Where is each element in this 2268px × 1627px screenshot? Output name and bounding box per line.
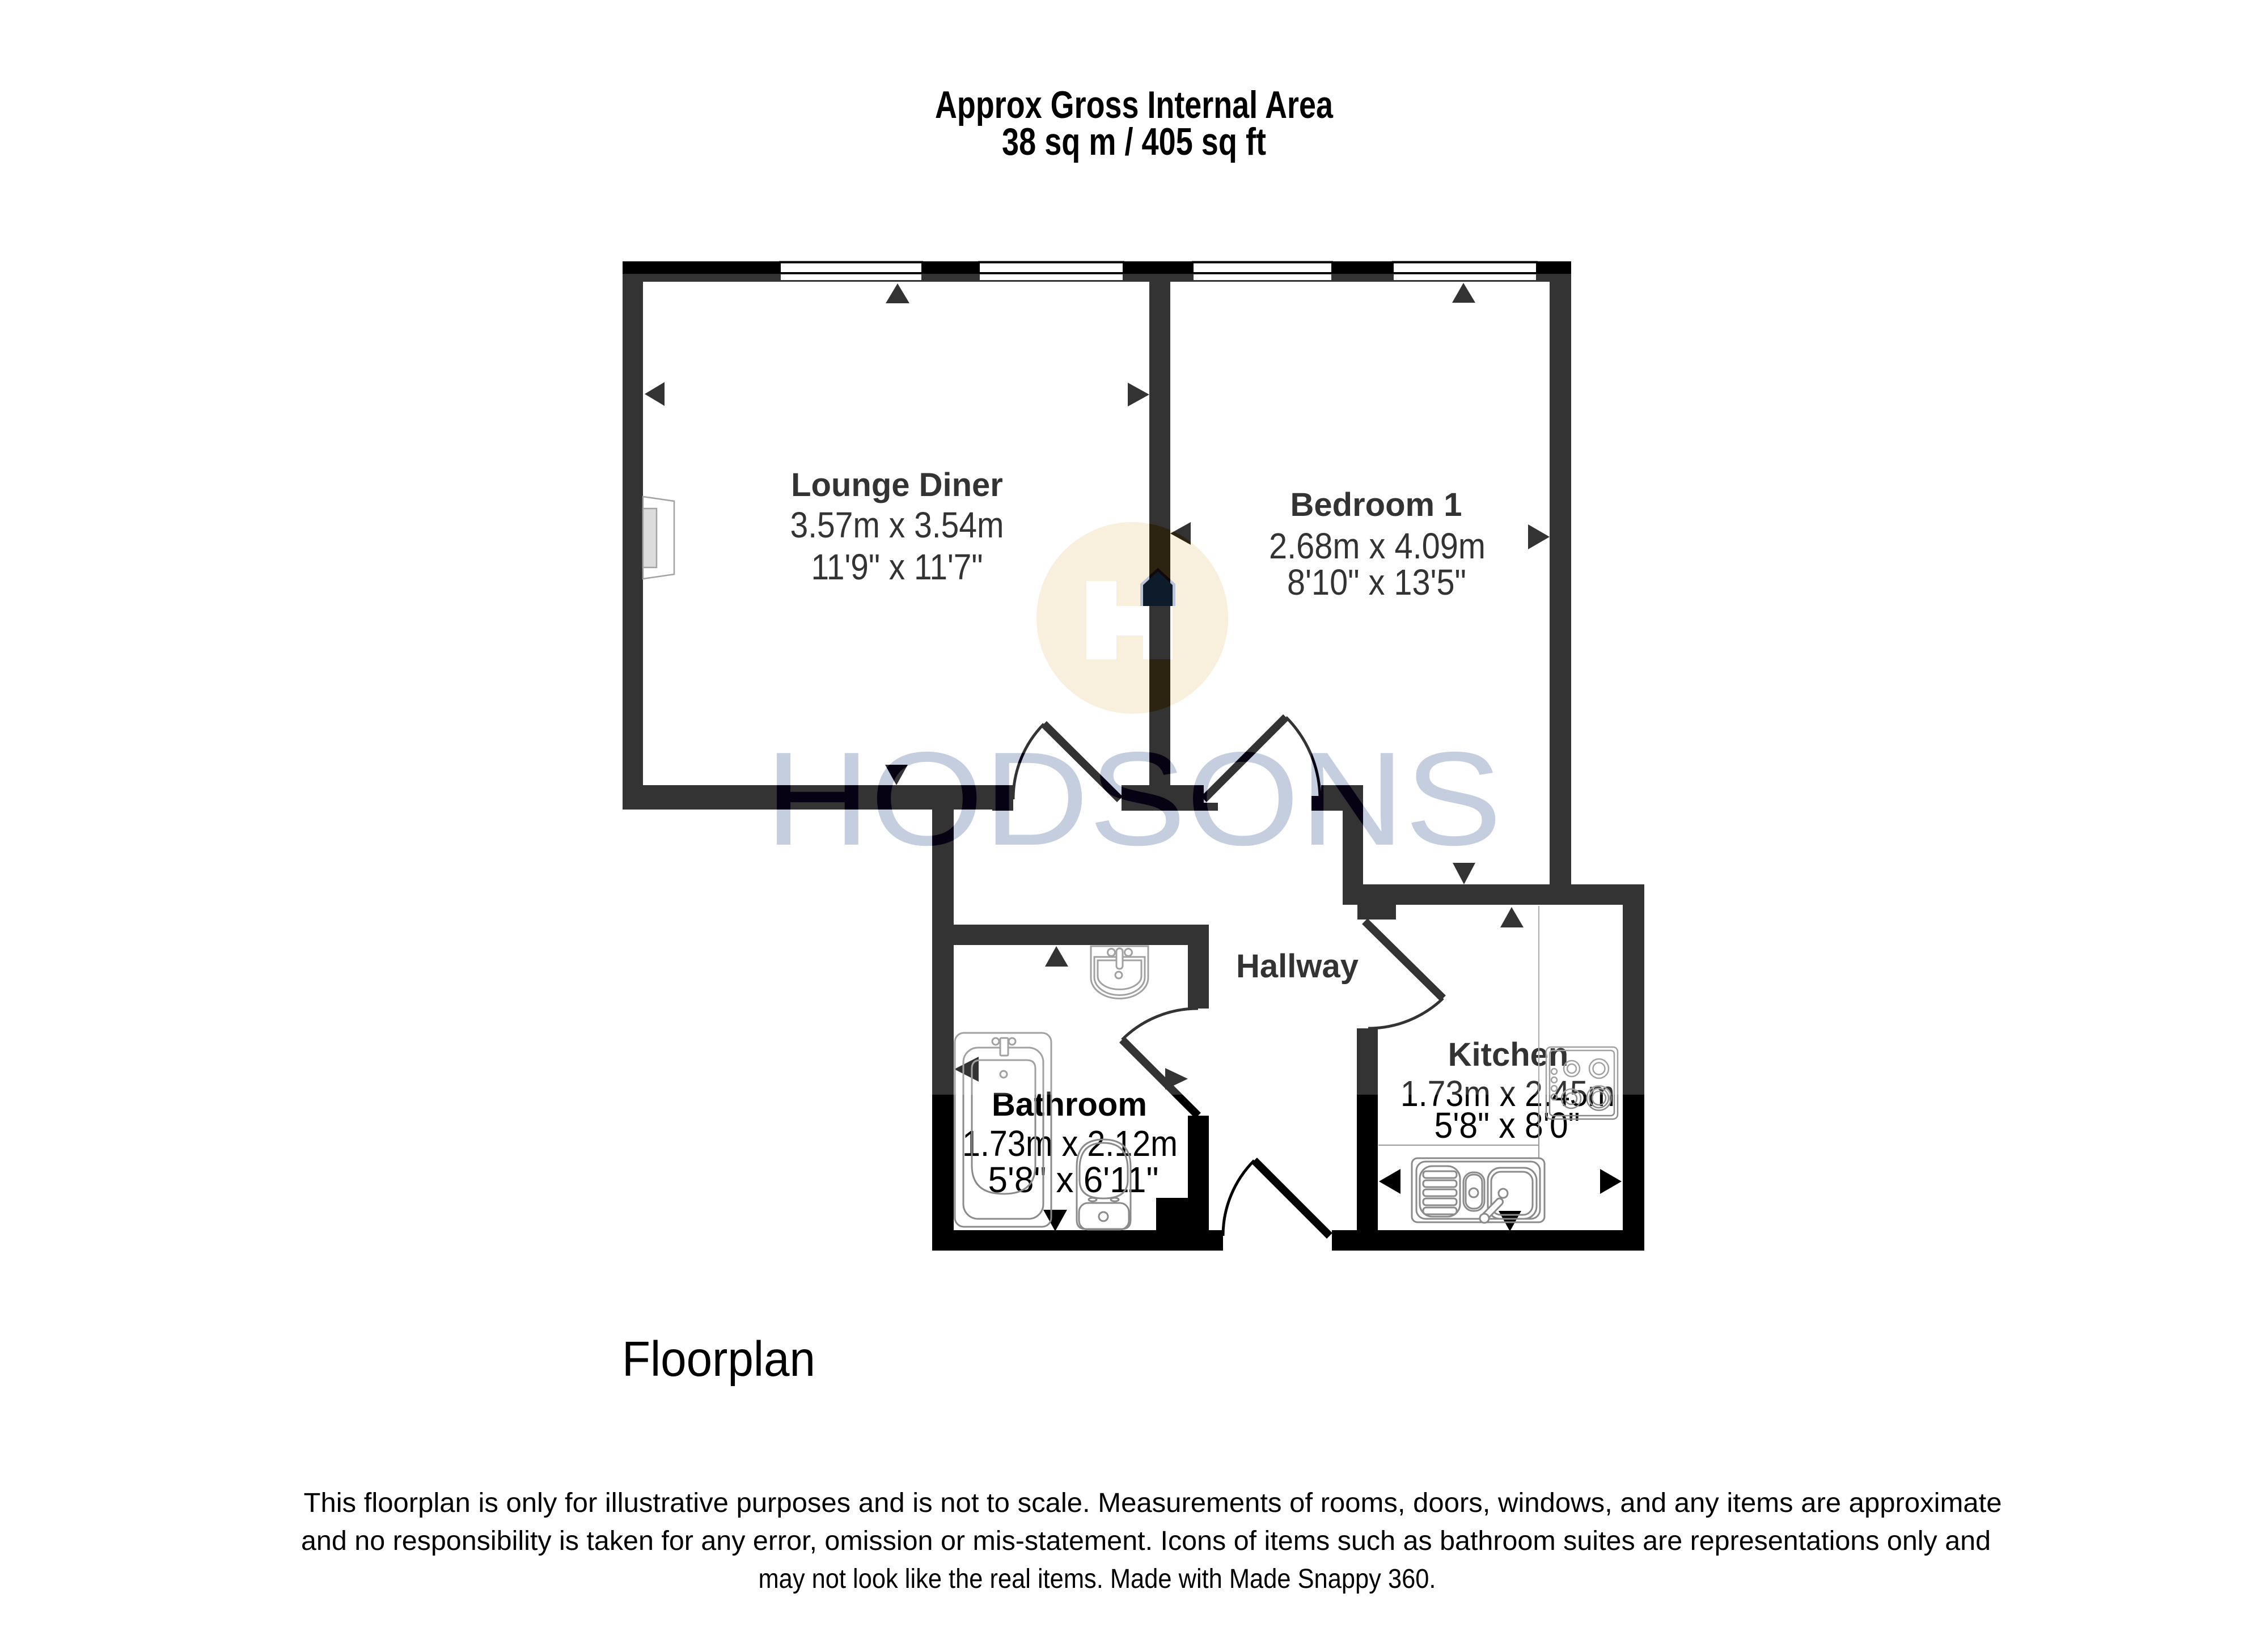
svg-text:HODSONS: HODSONS bbox=[765, 724, 1502, 873]
svg-text:This floorplan is only for ill: This floorplan is only for illustrative … bbox=[304, 1488, 2002, 1518]
svg-text:5'8" x 6'11": 5'8" x 6'11" bbox=[988, 1159, 1159, 1200]
svg-text:5'8" x 8'0": 5'8" x 8'0" bbox=[1435, 1105, 1580, 1146]
svg-text:38 sq m / 405 sq ft: 38 sq m / 405 sq ft bbox=[1002, 120, 1266, 163]
svg-text:may not look like the real ite: may not look like the real items. Made w… bbox=[759, 1564, 1436, 1594]
svg-text:and no responsibility is taken: and no responsibility is taken for any e… bbox=[301, 1526, 1991, 1556]
svg-text:Floorplan: Floorplan bbox=[622, 1332, 815, 1387]
svg-text:1.73m x 2.12m: 1.73m x 2.12m bbox=[962, 1123, 1178, 1164]
